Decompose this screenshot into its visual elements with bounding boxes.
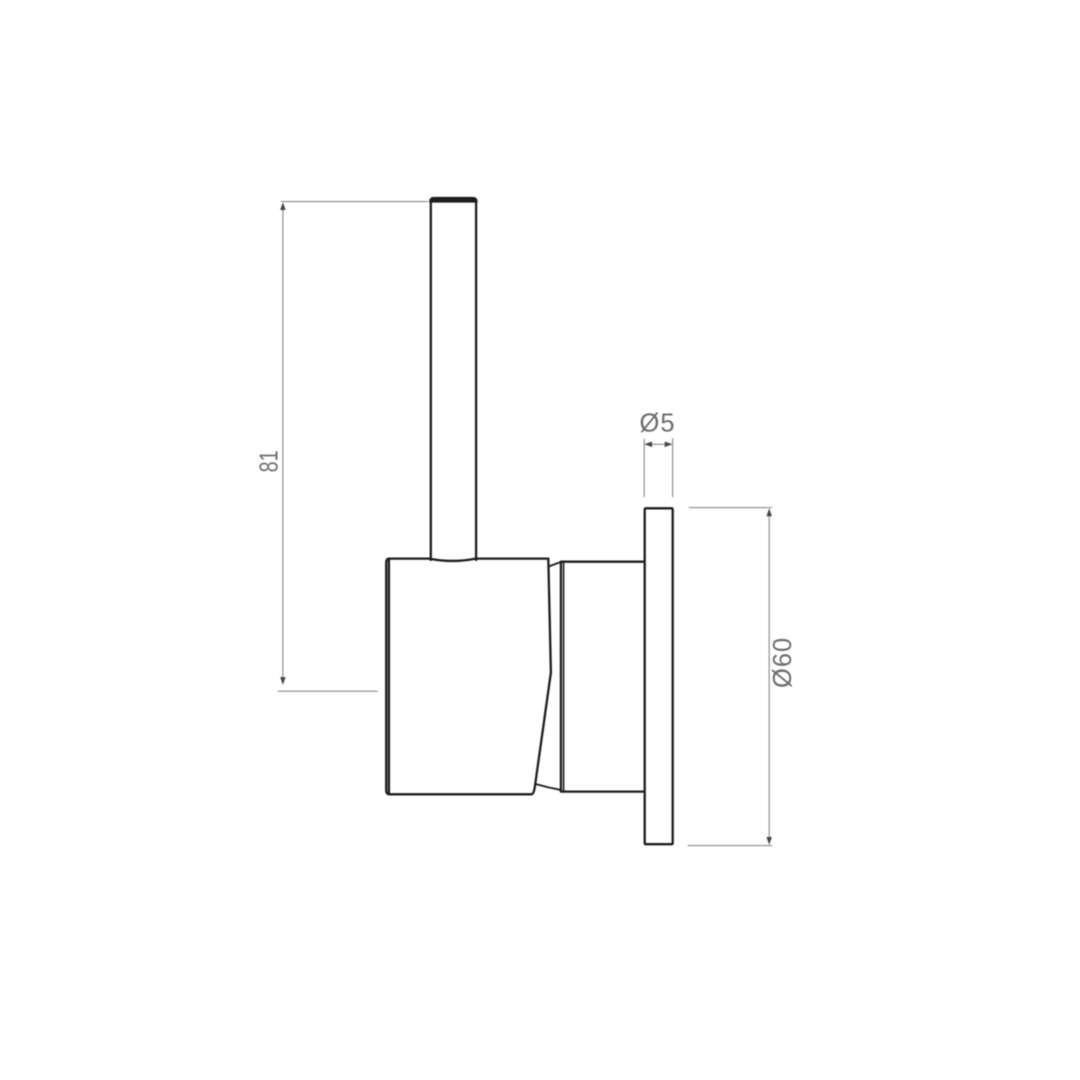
svg-text:Ø60: Ø60 [769, 637, 797, 688]
svg-text:Ø5: Ø5 [639, 409, 675, 437]
svg-text:81: 81 [256, 450, 284, 472]
